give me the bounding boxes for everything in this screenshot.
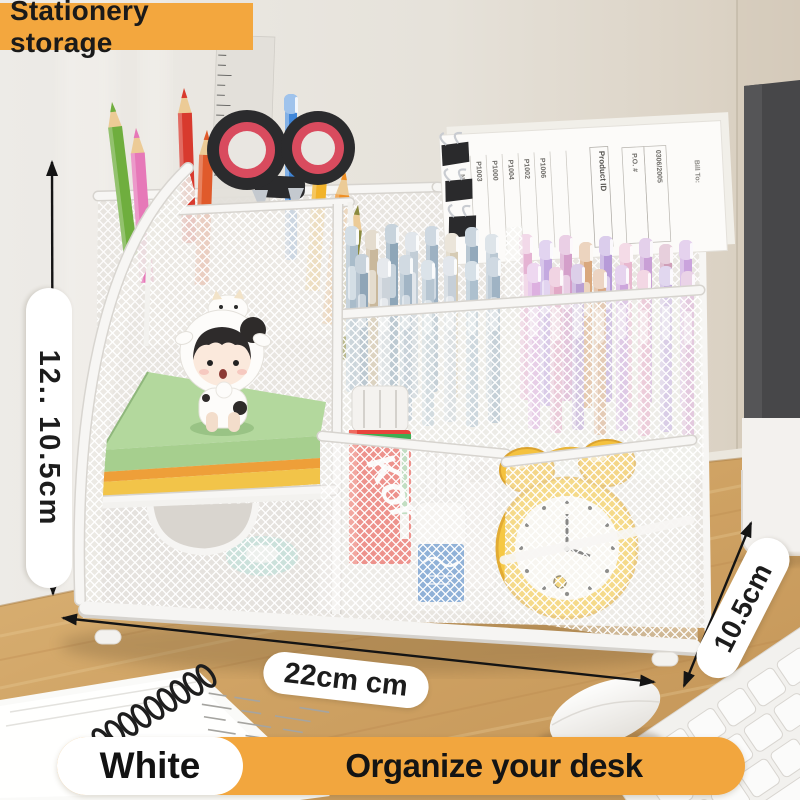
svg-text:P1000: P1000 xyxy=(490,160,498,181)
svg-text:P1002: P1002 xyxy=(522,159,530,180)
svg-text:P1004: P1004 xyxy=(506,159,514,180)
bill-to: Bill To: xyxy=(693,160,701,184)
svg-text:P1006: P1006 xyxy=(538,158,546,179)
tagline: Organize your desk xyxy=(243,737,745,795)
height-dimension-label: 12.. 10.5cm xyxy=(26,288,72,588)
stationery-storage-banner: Stationery storage xyxy=(0,3,253,50)
color-badge: White xyxy=(57,737,243,795)
po-label: P.O. # xyxy=(630,153,638,172)
front-compartment xyxy=(318,436,508,612)
right-compartment xyxy=(504,440,698,650)
svg-text:P1003: P1003 xyxy=(474,161,482,182)
top-banner-label: Stationery storage xyxy=(10,0,253,59)
product-image: Product ID P1003 P1000 P1004 P1002 P1006… xyxy=(0,0,800,800)
monitor xyxy=(735,80,800,567)
drawer xyxy=(86,496,332,618)
bottom-banner: White Organize your desk xyxy=(57,737,745,795)
